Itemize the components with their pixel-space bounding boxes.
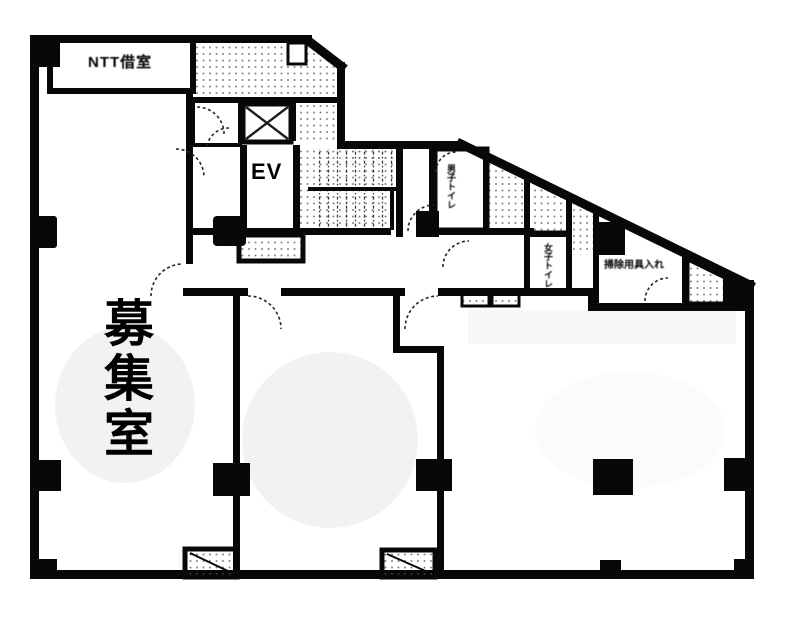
elevator-shaft-x-icon: [243, 104, 291, 142]
stairs: [308, 149, 396, 230]
vacant-room-label: 募集室: [100, 297, 150, 462]
mens-toilet-room: [435, 149, 487, 230]
elevator-label: EV: [251, 161, 282, 183]
floor-plan-page: NTT借室 EV 募集室 男子トイレ 女子トイレ 掃除用具入れ: [0, 0, 787, 629]
ntt-room-label: NTT借室: [88, 55, 152, 70]
mens-toilet-label: 男子トイレ: [446, 164, 455, 209]
core-vestibule-cell: [193, 101, 240, 145]
womens-toilet-label: 女子トイレ: [543, 243, 552, 288]
utility-room-label: 掃除用具入れ: [604, 261, 664, 271]
